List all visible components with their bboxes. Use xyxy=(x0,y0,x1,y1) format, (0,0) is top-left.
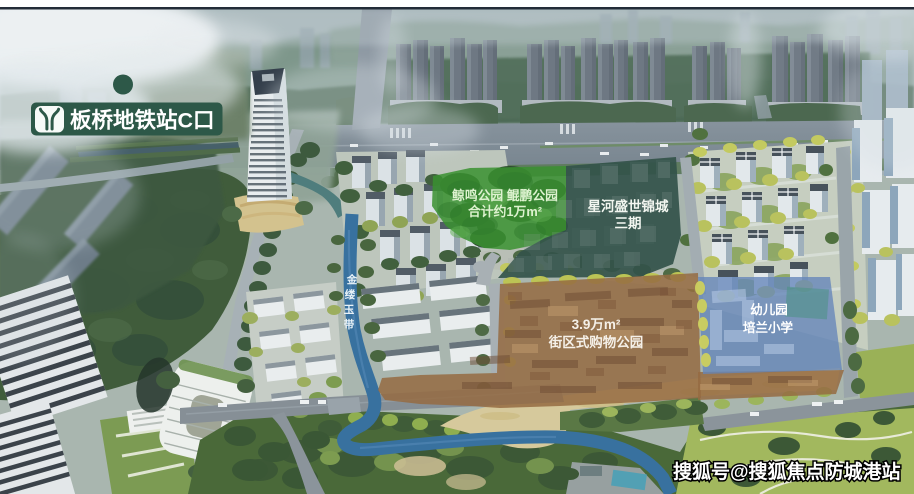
svg-text:带: 带 xyxy=(344,318,355,331)
svg-text:3.9万m²: 3.9万m² xyxy=(572,317,621,332)
svg-text:培兰小学: 培兰小学 xyxy=(743,320,794,335)
svg-text:街区式购物公园: 街区式购物公园 xyxy=(548,334,644,350)
svg-text:三期: 三期 xyxy=(615,216,642,231)
svg-text:鲸鸣公园 鲲鹏公园: 鲸鸣公园 鲲鹏公园 xyxy=(452,188,558,203)
svg-text:板桥地铁站C口: 板桥地铁站C口 xyxy=(70,108,215,133)
svg-text:搜狐号@搜狐焦点防城港站: 搜狐号@搜狐焦点防城港站 xyxy=(673,460,901,483)
svg-text:金: 金 xyxy=(346,273,358,286)
svg-text:缕: 缕 xyxy=(344,288,356,301)
svg-text:玉: 玉 xyxy=(344,304,355,316)
svg-text:幼儿园: 幼儿园 xyxy=(750,302,788,317)
svg-text:星河盛世锦城: 星河盛世锦城 xyxy=(588,198,669,214)
svg-text:合计约1万m²: 合计约1万m² xyxy=(467,204,542,219)
